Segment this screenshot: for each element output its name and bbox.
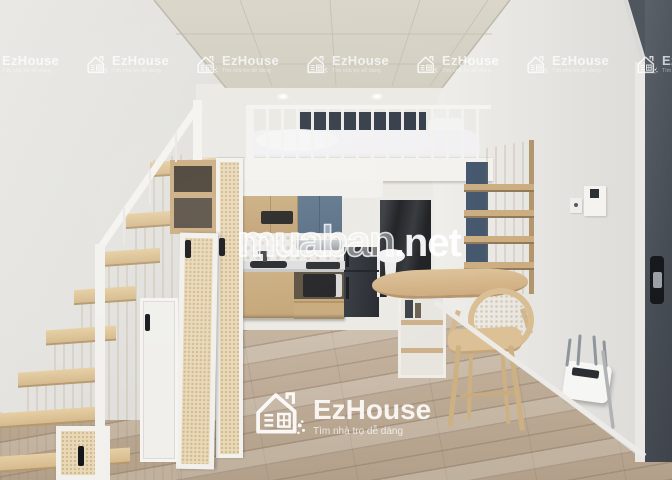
shelf-board [464, 210, 534, 218]
studio-apartment-photo: EzHouse Tìm nhà trọ dễ dàng EzHouse Tìm … [0, 0, 672, 480]
understair-cabinet-door [176, 233, 218, 470]
cubby-opening [174, 166, 212, 192]
switch-button [590, 189, 599, 198]
cabinet-handle [219, 238, 225, 256]
kitchen-sink [250, 261, 287, 268]
door-handle [653, 272, 662, 288]
kitchen-appliance [261, 211, 293, 224]
range-hood [296, 240, 342, 250]
pedestal-sink [377, 249, 405, 263]
microwave [303, 274, 342, 297]
refrigerator-handle [346, 277, 349, 299]
power-outlet [570, 198, 582, 213]
shelf-board [464, 236, 534, 244]
entry-door [645, 0, 672, 462]
cooktop [306, 262, 340, 269]
wifi-router [562, 360, 613, 404]
shelf-board [464, 184, 534, 192]
recessed-light [371, 93, 383, 100]
recessed-light [277, 93, 289, 100]
shelf-board [401, 320, 443, 325]
shelf-board [401, 348, 443, 353]
books [405, 300, 413, 318]
cabinet-shadow [243, 316, 345, 321]
kitchen-faucet [263, 251, 267, 262]
cabinet-handle [145, 314, 150, 331]
cabinet-handle [185, 240, 191, 258]
refrigerator-handle [346, 251, 349, 267]
door-frame [635, 62, 645, 462]
books [415, 303, 421, 318]
refrigerator-door-split [344, 270, 379, 272]
understair-cabinet-door [216, 158, 243, 458]
loft-railing [246, 105, 491, 164]
cabinet-handle [78, 446, 84, 466]
cubby-opening [174, 198, 212, 228]
